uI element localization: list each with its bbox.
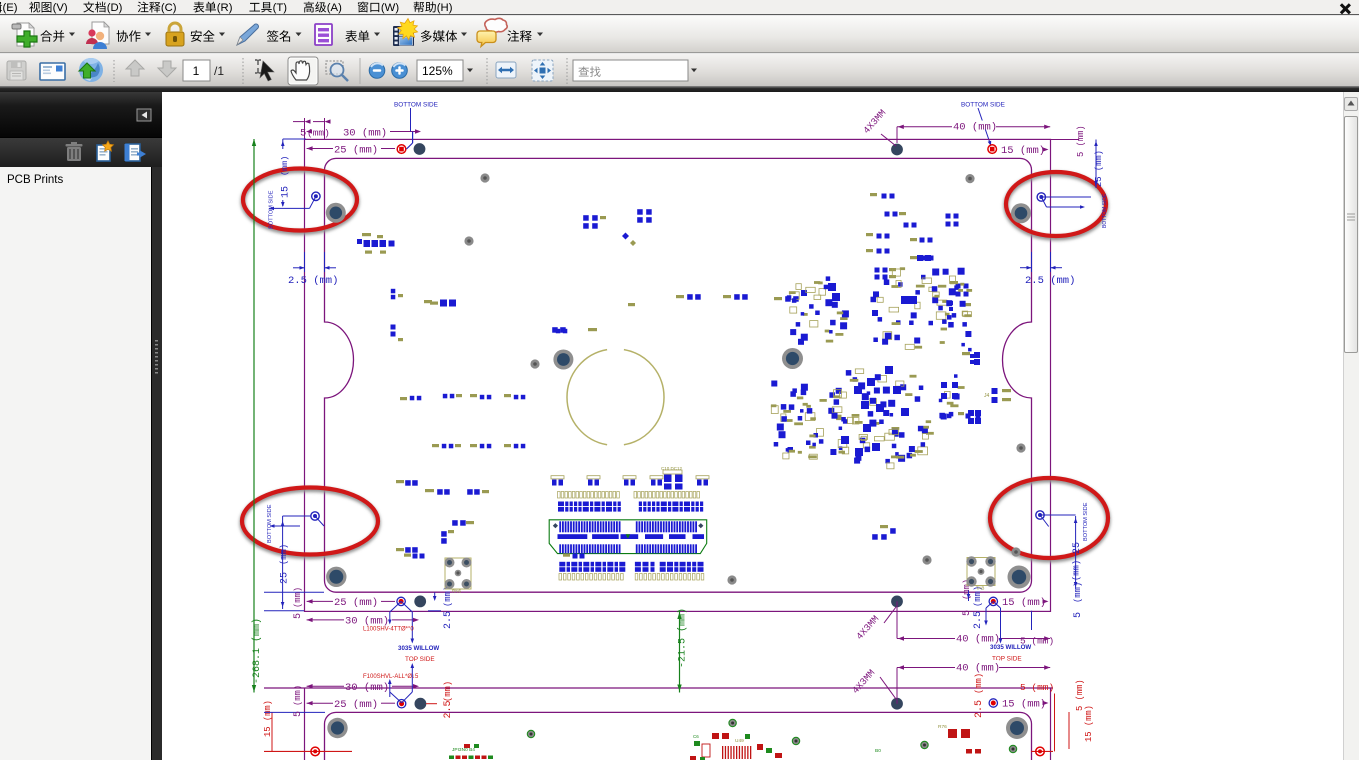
svg-text:2.5 (mm): 2.5 (mm) [288, 275, 338, 287]
svg-text:5: 5 [293, 613, 304, 619]
svg-text:30 (mm): 30 (mm) [343, 128, 387, 140]
svg-text:RN6: RN6 [452, 589, 461, 594]
svg-text:J4: J4 [984, 393, 990, 399]
svg-text:-268.1 (mm): -268.1 (mm) [251, 618, 263, 684]
svg-text:25 (mm): 25 (mm) [1094, 150, 1104, 187]
svg-text:(mm): (mm) [974, 673, 984, 694]
svg-text:(mm): (mm) [443, 681, 453, 702]
svg-text:2.5: 2.5 [443, 700, 454, 718]
svg-text:TAB: TAB [976, 586, 984, 591]
svg-text:3035 WILLOW: 3035 WILLOW [990, 644, 1031, 651]
svg-text:BOTTOM SIDE: BOTTOM SIDE [1102, 193, 1108, 228]
svg-text:C6: C6 [693, 734, 699, 739]
svg-text:5: 5 [962, 610, 973, 616]
svg-text:(mm): (mm) [279, 544, 289, 565]
svg-text:125%: 125% [422, 64, 453, 78]
svg-text:B0: B0 [875, 748, 881, 754]
svg-text:(mm): (mm) [293, 587, 303, 608]
svg-text:F100SHVL-ALL*Ø↓5: F100SHVL-ALL*Ø↓5 [363, 674, 419, 680]
svg-text:15 (mm): 15 (mm) [1002, 597, 1046, 609]
svg-text:L100SHV-4TTØ*°0: L100SHV-4TTØ*°0 [363, 627, 414, 633]
svg-text:2.5: 2.5 [973, 611, 984, 629]
svg-text:15 (mm): 15 (mm) [1002, 699, 1046, 711]
svg-text:3035 WILLOW: 3035 WILLOW [398, 645, 439, 652]
svg-text:15: 15 [281, 186, 292, 198]
svg-text:-21.5 (mm): -21.5 (mm) [677, 608, 689, 668]
svg-text:(D): (D) [107, 2, 123, 14]
svg-text:BOTTOM SIDE: BOTTOM SIDE [961, 102, 1005, 109]
svg-text:(W): (W) [381, 2, 399, 14]
svg-text:1: 1 [193, 64, 200, 78]
svg-text:TOP SIDE: TOP SIDE [405, 656, 435, 663]
svg-text:(mm): (mm) [293, 685, 303, 706]
svg-text:2.5 (mm): 2.5 (mm) [1025, 275, 1075, 287]
svg-text:40 (mm): 40 (mm) [953, 122, 997, 134]
svg-text:(mm): (mm) [1073, 582, 1083, 603]
svg-text:5: 5 [300, 128, 306, 140]
svg-text:(mm): (mm) [1072, 560, 1082, 581]
svg-text:JPI3N0 B4: JPI3N0 B4 [452, 747, 475, 753]
svg-text:40 (mm): 40 (mm) [956, 663, 1000, 675]
svg-text:(R): (R) [217, 2, 233, 14]
svg-text:25 (mm): 25 (mm) [334, 699, 378, 711]
svg-text:25: 25 [280, 572, 291, 584]
svg-text:BOTTOM SIDE: BOTTOM SIDE [267, 504, 273, 543]
svg-text:2.5: 2.5 [974, 700, 985, 718]
svg-text:5: 5 [293, 711, 304, 717]
svg-text:BOTTOM SIDE: BOTTOM SIDE [1083, 502, 1089, 541]
svg-text:2.5: 2.5 [443, 611, 454, 629]
svg-text:(A): (A) [327, 2, 342, 14]
svg-text:U49: U49 [735, 738, 744, 744]
svg-text:(H): (H) [437, 2, 453, 14]
svg-text:(C): (C) [161, 2, 177, 14]
svg-text:/1: /1 [214, 64, 224, 78]
svg-text:5 (mm): 5 (mm) [1076, 125, 1086, 157]
svg-text:(mm): (mm) [280, 156, 290, 176]
svg-text:30 (mm): 30 (mm) [345, 682, 389, 694]
svg-text:(V): (V) [53, 2, 68, 14]
svg-text:15 (mm): 15 (mm) [1001, 145, 1045, 157]
svg-text:BOTTOM SIDE: BOTTOM SIDE [394, 102, 438, 109]
svg-text:(E): (E) [3, 2, 18, 14]
svg-text:25 (mm): 25 (mm) [334, 145, 378, 157]
svg-text:5 (mm): 5 (mm) [1020, 682, 1054, 693]
svg-text:25: 25 [1072, 542, 1083, 554]
svg-text:BOTTOM SIDE: BOTTOM SIDE [269, 190, 275, 229]
svg-text:15 (mm): 15 (mm) [1084, 705, 1094, 742]
svg-text:25 (mm): 25 (mm) [334, 597, 378, 609]
svg-text:(T): (T) [273, 2, 288, 14]
svg-text:C10 DC12: C10 DC12 [661, 466, 683, 471]
svg-text:R76: R76 [938, 724, 947, 730]
svg-text:5: 5 [1073, 612, 1084, 618]
